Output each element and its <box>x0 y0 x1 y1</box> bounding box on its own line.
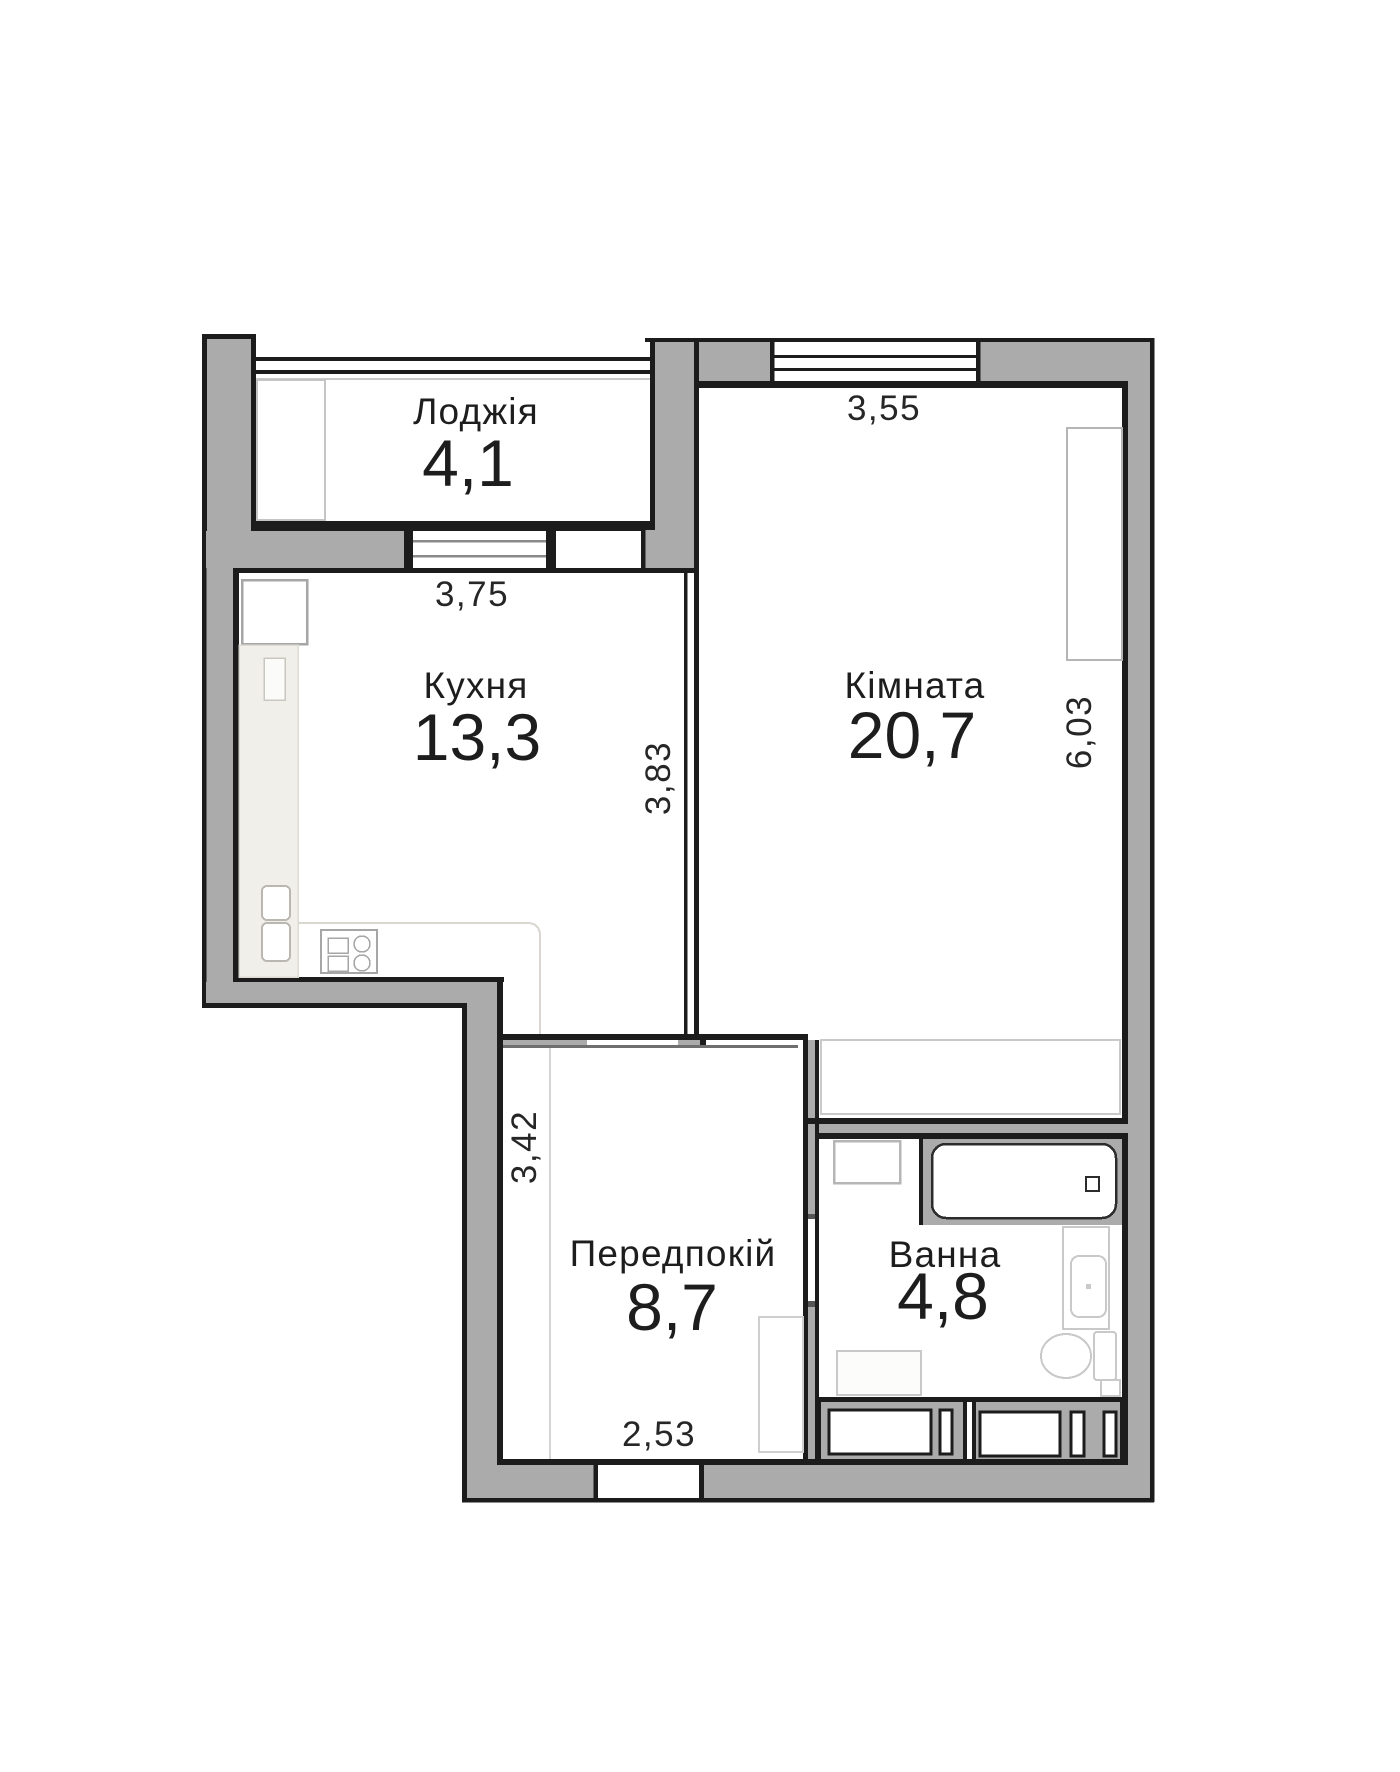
svg-text:20,7: 20,7 <box>848 698 976 772</box>
svg-text:4,1: 4,1 <box>422 426 514 500</box>
svg-text:2,53: 2,53 <box>622 1415 696 1454</box>
svg-text:13,3: 13,3 <box>413 700 541 774</box>
svg-text:8,7: 8,7 <box>626 1270 718 1344</box>
svg-text:6,03: 6,03 <box>1060 695 1099 769</box>
svg-text:3,55: 3,55 <box>847 389 921 428</box>
svg-text:3,83: 3,83 <box>639 741 678 815</box>
svg-text:3,75: 3,75 <box>435 575 509 614</box>
svg-text:Передпокій: Передпокій <box>570 1233 777 1274</box>
svg-text:4,8: 4,8 <box>897 1259 989 1333</box>
svg-text:3,42: 3,42 <box>505 1110 544 1184</box>
